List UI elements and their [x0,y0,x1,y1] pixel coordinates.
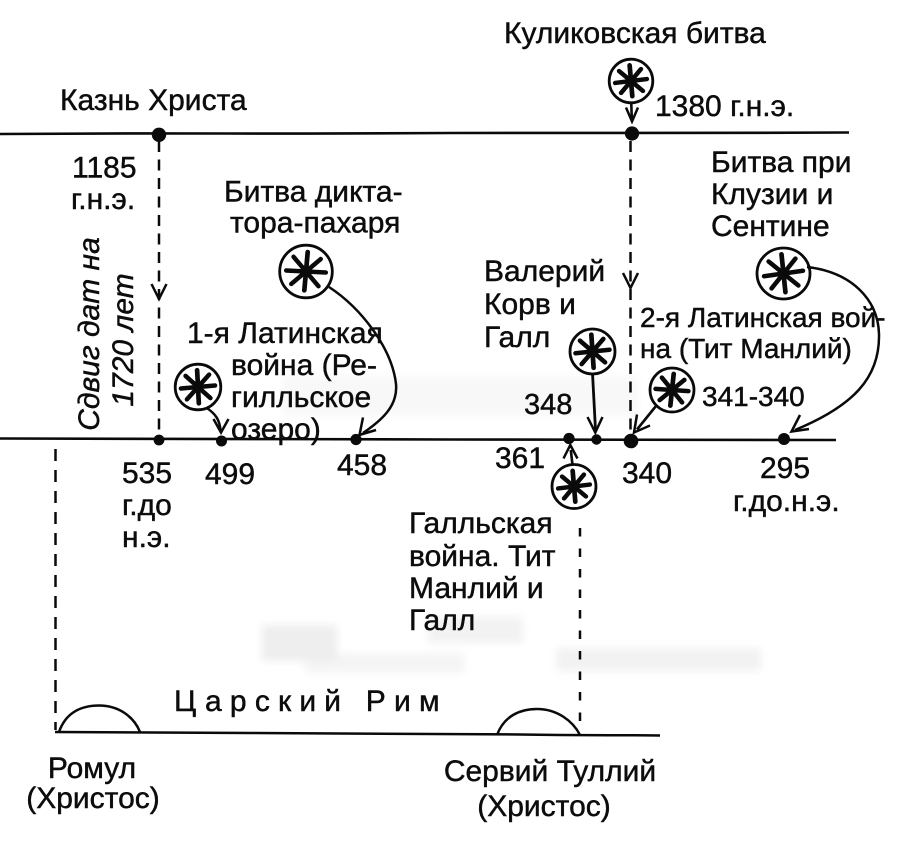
svg-text:348: 348 [524,389,572,421]
svg-text:Ромул: Ромул [48,752,136,785]
svg-text:341-340: 341-340 [702,381,805,412]
svg-text:Сентине: Сентине [711,210,830,243]
svg-text:Корв и: Корв и [484,288,576,321]
svg-text:1720 лет: 1720 лет [107,273,140,406]
svg-text:458: 458 [337,449,387,482]
svg-text:гилльское: гилльское [231,381,371,414]
svg-text:война (Ре-: война (Ре- [231,349,377,382]
svg-text:война. Тит: война. Тит [409,540,556,573]
svg-text:(Христос): (Христос) [26,782,160,815]
svg-text:2-я Латинская вой-: 2-я Латинская вой- [640,302,886,333]
svg-text:Манлий и: Манлий и [409,572,544,605]
svg-text:Валерий: Валерий [484,255,605,288]
svg-text:Галл: Галл [484,321,550,354]
svg-text:г.до.н.э.: г.до.н.э. [733,485,840,518]
svg-text:Клузии и: Клузии и [711,178,833,211]
svg-text:Битва при: Битва при [711,146,852,179]
svg-text:г.до: г.до [122,489,172,522]
svg-text:Галл: Галл [409,604,475,637]
svg-text:340: 340 [622,457,672,490]
svg-text:Сдвиг дат на: Сдвиг дат на [73,237,106,431]
svg-text:499: 499 [205,458,255,491]
svg-text:н.э.: н.э. [122,521,171,554]
svg-text:на (Тит Манлий): на (Тит Манлий) [640,333,852,364]
svg-text:Галльская: Галльская [409,507,553,540]
svg-text:г.н.э.: г.н.э. [71,183,135,216]
svg-text:535: 535 [122,457,172,490]
svg-text:(Христос): (Христос) [477,790,611,823]
svg-text:Царский Рим: Царский Рим [174,685,448,718]
svg-text:Сервий Туллий: Сервий Туллий [444,755,656,788]
svg-text:1-я Латинская: 1-я Латинская [187,317,383,350]
svg-text:озеро): озеро) [231,413,321,446]
svg-text:295: 295 [760,452,810,485]
svg-text:Куликовская битва: Куликовская битва [504,17,766,50]
svg-text:Битва дикта-: Битва дикта- [224,176,403,209]
svg-text:Казнь Христа: Казнь Христа [60,84,247,117]
svg-text:1380 г.н.э.: 1380 г.н.э. [655,90,794,123]
svg-text:1185: 1185 [72,152,137,185]
svg-text:361: 361 [495,442,545,475]
svg-text:тора-пахаря: тора-пахаря [230,207,400,240]
